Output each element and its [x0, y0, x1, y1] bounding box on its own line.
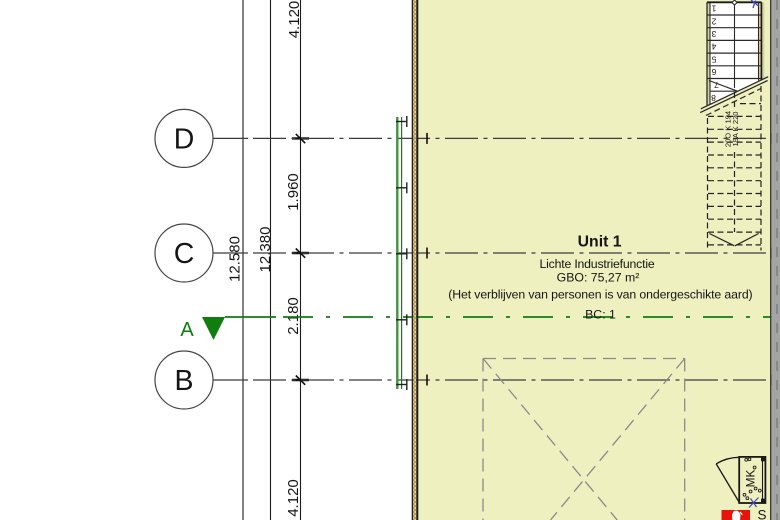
- svg-text:4.120: 4.120: [286, 1, 303, 39]
- svg-text:3: 3: [711, 29, 716, 39]
- svg-text:B: B: [174, 365, 193, 397]
- svg-text:19A K 220: 19A K 220: [731, 111, 740, 146]
- svg-text:2: 2: [711, 16, 716, 26]
- svg-text:2.180: 2.180: [285, 297, 302, 335]
- svg-text:GBO: 75,27 m²: GBO: 75,27 m²: [557, 271, 640, 285]
- svg-text:C: C: [174, 238, 195, 270]
- svg-text:(Het verblijven van personen i: (Het verblijven van personen is van onde…: [448, 287, 752, 301]
- svg-text:MK: MK: [744, 470, 758, 488]
- svg-text:6: 6: [711, 67, 716, 77]
- svg-text:4.120: 4.120: [285, 479, 302, 517]
- svg-text:12.580: 12.580: [227, 236, 244, 282]
- svg-text:Unit 1: Unit 1: [578, 234, 622, 251]
- svg-text:12.380: 12.380: [257, 227, 274, 273]
- svg-text:A: A: [180, 319, 194, 341]
- svg-text:1: 1: [711, 4, 716, 14]
- svg-text:1.960: 1.960: [285, 173, 302, 211]
- svg-text:7: 7: [714, 80, 719, 90]
- svg-text:S: S: [758, 508, 767, 520]
- svg-text:D: D: [174, 124, 195, 156]
- svg-text:BC: 1: BC: 1: [585, 308, 616, 322]
- svg-text:5: 5: [711, 54, 716, 64]
- svg-text:4: 4: [711, 42, 716, 52]
- svg-text:Lichte Industriefunctie: Lichte Industriefunctie: [539, 257, 654, 271]
